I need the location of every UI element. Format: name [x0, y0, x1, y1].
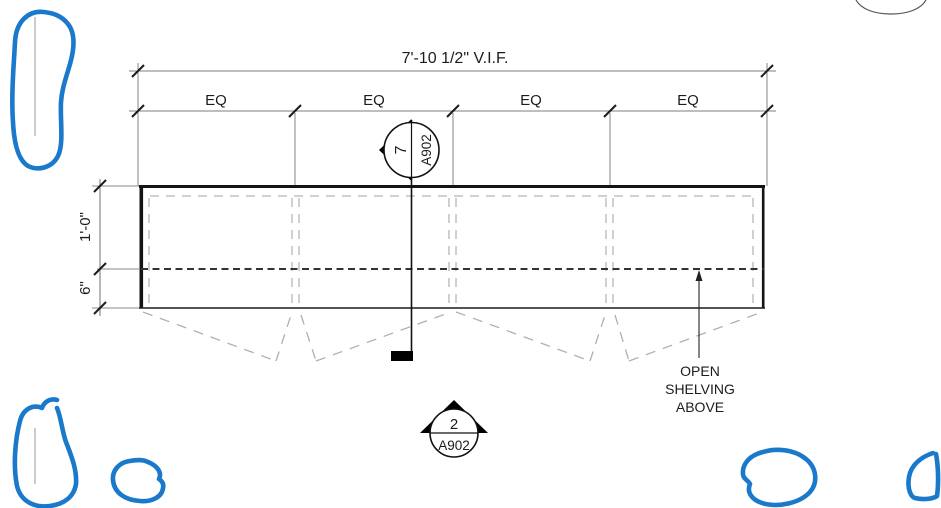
markup-scribble-top-left[interactable] [12, 12, 73, 169]
note-leader-arrowhead [696, 270, 703, 281]
depth-dim-lower: 6" [77, 281, 94, 295]
detail-bubble-arc [856, 0, 926, 14]
overall-dim-label: 7'-10 1/2" V.I.F. [402, 50, 509, 67]
markup-scribble-bottom-left[interactable] [15, 399, 76, 506]
open-shelving-note: OPEN SHELVING ABOVE [665, 270, 735, 415]
depth-dimension: 1'-0" 6" [77, 179, 139, 316]
eq-dimension: EQ EQ EQ EQ [129, 92, 776, 185]
eq-label-1: EQ [205, 92, 227, 109]
eq-label-4: EQ [677, 92, 699, 109]
callout-detail-number: 2 [450, 416, 458, 433]
section-cut-flag [391, 351, 413, 361]
eq-label-3: EQ [520, 92, 542, 109]
note-line-3: ABOVE [676, 399, 724, 415]
note-line-2: SHELVING [665, 381, 735, 397]
drawing-canvas: 7'-10 1/2" V.I.F. EQ EQ EQ EQ 1'-0" 6" [0, 0, 941, 508]
note-line-1: OPEN [680, 363, 720, 379]
eq-label-2: EQ [363, 92, 385, 109]
markup-scribble-far-right[interactable] [908, 453, 938, 499]
shelving-above-projection [143, 312, 762, 361]
markup-scribble-bottom-right[interactable] [743, 450, 815, 505]
callout-detail-number: 7 [393, 145, 410, 154]
callout-sheet-number: A902 [438, 438, 470, 453]
casework-plan-outline [139, 185, 765, 309]
markup-scribble-bottom-left-small[interactable] [113, 460, 163, 501]
callout-sheet-number: A902 [419, 134, 434, 166]
shelf-hidden-lines [141, 196, 764, 307]
depth-dim-upper: 1'-0" [77, 212, 94, 242]
section-callout-7-A902[interactable]: 7 A902 [379, 119, 439, 181]
section-callout-2-A902[interactable]: 2 A902 [420, 400, 488, 457]
